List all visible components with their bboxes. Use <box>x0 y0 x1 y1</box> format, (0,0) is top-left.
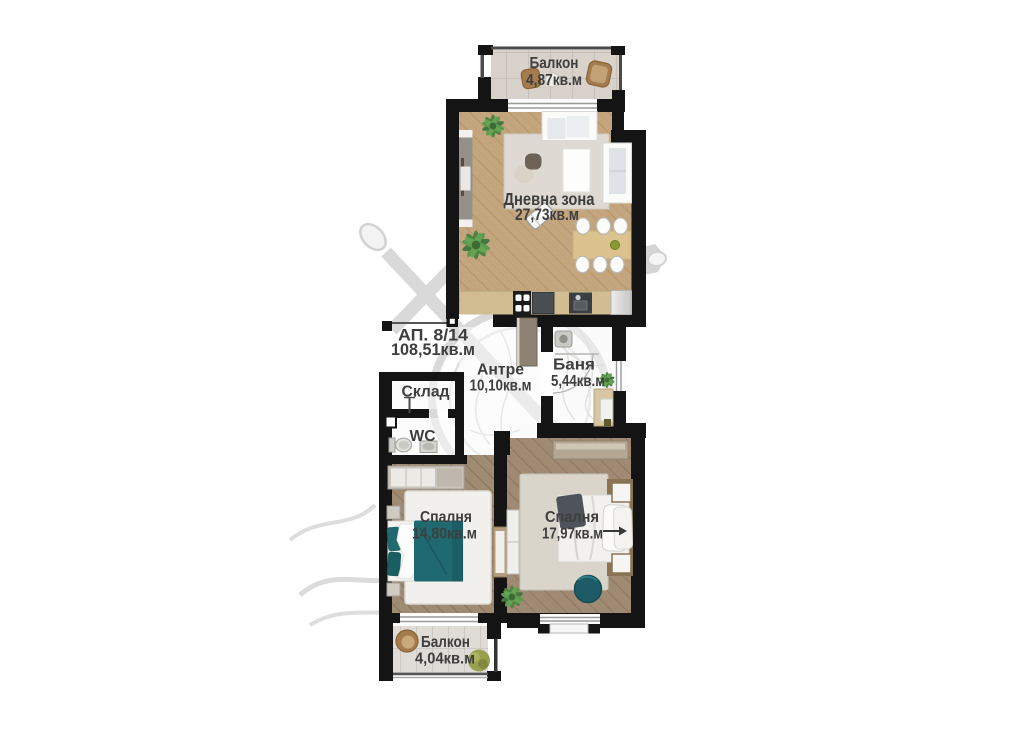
svg-text:Балкон: Балкон <box>530 55 579 72</box>
svg-text:4,87кв.м: 4,87кв.м <box>526 72 582 89</box>
svg-text:Спалня: Спалня <box>420 509 472 526</box>
svg-text:27,73кв.м: 27,73кв.м <box>515 206 579 224</box>
svg-text:Балкон: Балкон <box>421 634 470 651</box>
svg-text:Спалня: Спалня <box>545 509 599 526</box>
svg-text:Склад: Склад <box>402 384 450 401</box>
svg-text:10,10кв.м: 10,10кв.м <box>470 378 532 395</box>
svg-text:WC: WC <box>410 428 436 445</box>
svg-text:14,80кв.м: 14,80кв.м <box>412 526 477 543</box>
svg-text:Баня: Баня <box>553 357 595 374</box>
svg-text:Антре: Антре <box>477 362 524 379</box>
svg-text:4,04кв.м: 4,04кв.м <box>415 651 475 668</box>
svg-text:5,44кв.м: 5,44кв.м <box>551 373 605 390</box>
svg-text:17,97кв.м: 17,97кв.м <box>542 526 603 543</box>
svg-text:108,51кв.м: 108,51кв.м <box>391 341 475 359</box>
